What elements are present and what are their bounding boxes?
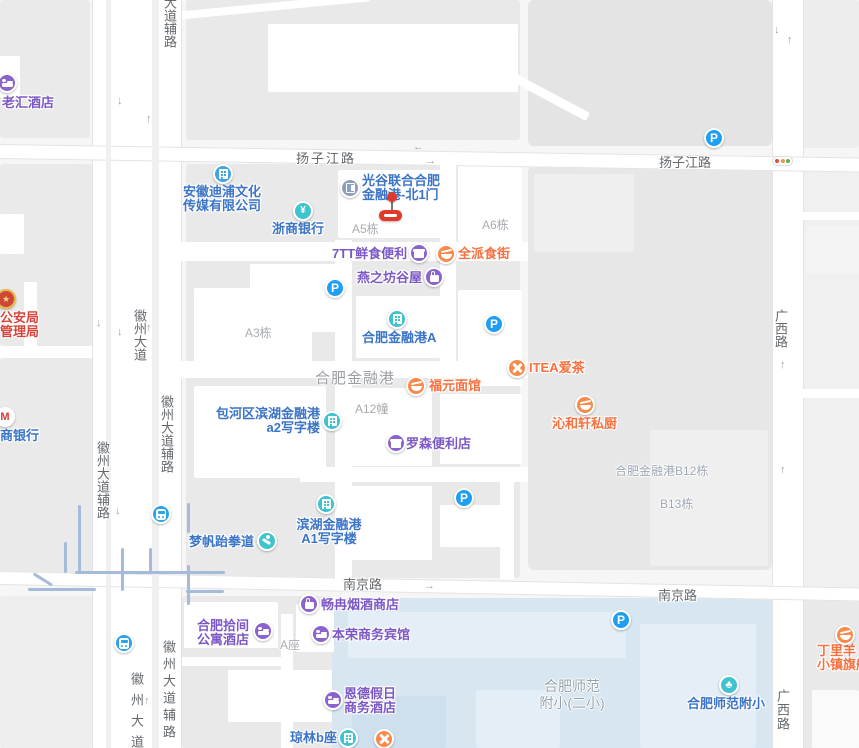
- lane-arrow-down-icon: ↓: [774, 25, 780, 36]
- gate-icon[interactable]: [340, 178, 360, 198]
- road-label-guangxi: 广西路: [771, 309, 790, 348]
- poi-lawson[interactable]: 罗森便利店: [406, 437, 471, 451]
- hotel-icon[interactable]: [253, 621, 273, 641]
- poi-line: 公寓酒店: [197, 633, 249, 647]
- company-icon[interactable]: [213, 164, 233, 184]
- rail-line: [78, 505, 81, 573]
- building-label-a-block: A座: [280, 636, 300, 653]
- poi-dingliyang[interactable]: 丁里羊 小镇旗舰: [817, 644, 859, 672]
- road-label-huizhou-frontage: 徽州大道辅路: [159, 640, 178, 742]
- road-label-huizhou-frontage: 大道辅路: [160, 0, 179, 48]
- building: [534, 174, 634, 252]
- food-bowl-icon[interactable]: [575, 395, 595, 415]
- rail-line: [28, 588, 96, 591]
- lane-arrow-right-icon: →: [425, 156, 436, 167]
- street: [300, 467, 528, 482]
- metro-station-icon[interactable]: [151, 504, 171, 524]
- poi-line: 滨湖金融港: [294, 518, 364, 532]
- rail-line: [186, 590, 224, 593]
- road-label-huizhou-frontage: 徽州大道辅路: [157, 395, 176, 473]
- road-median: [106, 0, 111, 748]
- traffic-light-icon: [772, 156, 793, 166]
- poi-laohui-hotel[interactable]: 老汇酒店: [2, 96, 54, 110]
- road-label-yangzijiang: 扬子江路: [659, 152, 711, 171]
- poi-line: 公安局: [0, 311, 39, 325]
- poi-shifan-primary-school[interactable]: 合肥师范附小: [687, 697, 765, 711]
- food-bowl-icon[interactable]: [406, 376, 426, 396]
- school-icon[interactable]: ♣: [719, 675, 739, 695]
- poi-line: 合肥拾间: [197, 619, 249, 633]
- food-bowl-icon[interactable]: [835, 625, 855, 645]
- lane-arrow-up-icon: ↑: [787, 35, 793, 46]
- road-guangxi-road: [772, 0, 804, 748]
- street: [802, 212, 859, 220]
- parking-icon[interactable]: P: [484, 314, 504, 334]
- building-label-b12: 合肥金融港B12栋: [615, 462, 708, 479]
- road-label-guangxi: 广西路: [773, 689, 792, 731]
- building: [440, 505, 502, 547]
- road-label-huizhou-frontage: 徽州大道辅路: [93, 441, 112, 519]
- building: [228, 670, 332, 722]
- poi-7tt-store[interactable]: 7TT鲜食便利: [332, 247, 407, 261]
- street: [182, 657, 282, 666]
- office-building-icon[interactable]: [322, 411, 342, 431]
- street: [800, 389, 859, 398]
- building: [812, 690, 859, 748]
- building-label-a3: A3栋: [245, 324, 272, 341]
- building-label-a5: A5栋: [352, 220, 379, 237]
- rail-line: [187, 565, 190, 605]
- hotel-icon[interactable]: [311, 624, 331, 644]
- road-label-yangzijiang: 扬子江路: [296, 148, 356, 167]
- poi-quanpai-food-street[interactable]: 全派食街: [458, 247, 510, 261]
- sports-person-icon[interactable]: [257, 531, 277, 551]
- rail-line: [64, 542, 67, 573]
- area-label-hefei-financial-port: 合肥金融港: [315, 367, 395, 388]
- poi-itea[interactable]: ITEA爱茶: [529, 361, 585, 375]
- lane-arrow-down-icon: ↓: [117, 96, 123, 107]
- poi-line: 包河区滨湖金融港: [215, 407, 320, 421]
- poi-north-gate1[interactable]: 光谷联合合肥 金融港-北1门: [362, 174, 440, 202]
- lane-arrow-up-icon: ↑: [780, 360, 786, 371]
- city-block: [0, 596, 92, 748]
- bank-icon[interactable]: ¥: [293, 201, 313, 221]
- poi-line: 小镇旗舰: [817, 658, 859, 672]
- food-bowl-icon[interactable]: [436, 244, 456, 264]
- poi-benrong-hotel[interactable]: 本荣商务宾馆: [332, 628, 410, 642]
- poi-line: 商务酒店: [344, 701, 396, 715]
- poi-line: 金融港-北1门: [362, 188, 440, 202]
- rail-line: [121, 548, 124, 591]
- street: [440, 164, 456, 376]
- street: [0, 346, 92, 358]
- building-label-a6: A6栋: [482, 216, 509, 233]
- street: [500, 467, 514, 579]
- road-label-nanjing: 南京路: [658, 585, 697, 604]
- poi-line: 管理局: [0, 325, 39, 339]
- shopping-bag-icon[interactable]: [299, 594, 319, 614]
- area-label-school-line2: 附小(二小): [534, 695, 610, 712]
- road-median: [152, 0, 159, 748]
- area-label-school-line1: 合肥师范: [534, 678, 610, 695]
- shopping-bag-icon[interactable]: [424, 267, 444, 287]
- poi-line: a2写字楼: [215, 421, 320, 435]
- poi-line: 光谷联合合肥: [362, 174, 440, 188]
- poi-ende-hotel[interactable]: 恩德假日 商务酒店: [344, 687, 396, 715]
- poi-line: A1写字楼: [294, 532, 364, 546]
- poi-changran-tobacco[interactable]: 畅冉烟酒商店: [321, 598, 399, 612]
- parking-icon[interactable]: P: [704, 128, 724, 148]
- poi-anhui-dipu[interactable]: 安徽迪浦文化 传媒有限公司: [183, 185, 261, 213]
- poi-merchants-bank[interactable]: 商银行: [0, 429, 39, 443]
- office-building-icon[interactable]: [316, 494, 336, 514]
- road-label-huizhou-avenue: 徽州大道: [130, 309, 149, 361]
- restaurant-icon[interactable]: [507, 358, 527, 378]
- traffic-light-green-dot: [786, 159, 790, 163]
- building-label-b13: B13栋: [660, 495, 693, 512]
- parking-icon[interactable]: P: [454, 488, 474, 508]
- lane-arrow-right-icon: →: [424, 581, 435, 592]
- poi-line: 恩德假日: [344, 687, 396, 701]
- poi-shijian-hotel[interactable]: 合肥拾间 公寓酒店: [197, 619, 249, 647]
- poi-financial-port-a[interactable]: 合肥金融港A: [362, 331, 436, 345]
- rail-line: [187, 503, 190, 533]
- poi-zheshang-bank[interactable]: 浙商银行: [272, 222, 324, 236]
- store-icon[interactable]: [409, 243, 429, 263]
- street: [281, 614, 293, 748]
- poi-line: 传媒有限公司: [183, 199, 261, 213]
- poi-yanzhifang[interactable]: 燕之坊谷屋: [357, 271, 422, 285]
- building-label-a12: A12幢: [355, 400, 388, 417]
- city-block: [802, 0, 859, 148]
- road-label-nanjing: 南京路: [343, 574, 382, 593]
- parking-icon[interactable]: P: [611, 610, 631, 630]
- city-block: [528, 0, 772, 146]
- area-label-school: 合肥师范 附小(二小): [534, 678, 610, 712]
- poi-public-security-bureau[interactable]: 公安局 管理局: [0, 311, 39, 339]
- lane-arrow-down-icon: ↓: [117, 327, 123, 338]
- hotel-icon[interactable]: [323, 690, 343, 710]
- building: [440, 394, 522, 464]
- poi-a1-office[interactable]: 滨湖金融港 A1写字楼: [294, 518, 364, 546]
- poi-fuyuan-noodles[interactable]: 福元面馆: [429, 379, 481, 393]
- office-building-icon[interactable]: [338, 728, 358, 748]
- lane-arrow-up-icon: ↑: [146, 114, 152, 125]
- lane-arrow-up-icon: ↑: [780, 465, 786, 476]
- traffic-light-orange-dot: [781, 159, 785, 163]
- lane-arrow-down-icon: ↓: [115, 506, 121, 517]
- office-building-icon[interactable]: [387, 309, 407, 329]
- restaurant-icon[interactable]: [374, 729, 394, 748]
- metro-station-icon[interactable]: [114, 633, 134, 653]
- poi-mengfan-taekwondo[interactable]: 梦帆跆拳道: [189, 535, 254, 549]
- lane-arrow-left-icon: ←: [413, 142, 424, 153]
- building: [0, 214, 24, 254]
- traffic-light-red-dot: [775, 159, 779, 163]
- map-canvas[interactable]: ↓ ↑ ← → ↓ ↓ ↑ ↓ ↑ ↓ ↑ ↑ ↑ → 扬子江路 扬子江路 南京…: [0, 0, 859, 748]
- poi-line: 安徽迪浦文化: [183, 185, 261, 199]
- road-label-huizhou-avenue: 徽州大道: [127, 672, 146, 748]
- parking-icon[interactable]: P: [325, 278, 345, 298]
- poi-a2-office[interactable]: 包河区滨湖金融港 a2写字楼: [215, 407, 320, 435]
- building: [806, 226, 859, 274]
- rail-line: [149, 548, 152, 573]
- destination-marker-dot[interactable]: [387, 192, 397, 202]
- poi-line: 丁里羊: [817, 644, 859, 658]
- poi-qinhexuan[interactable]: 沁和轩私厨: [552, 417, 617, 431]
- destination-marker-gate[interactable]: [379, 210, 402, 221]
- poi-qionglin-b[interactable]: 琼林b座: [290, 731, 337, 745]
- lane-arrow-down-icon: ↓: [96, 318, 102, 329]
- store-icon[interactable]: [386, 433, 406, 453]
